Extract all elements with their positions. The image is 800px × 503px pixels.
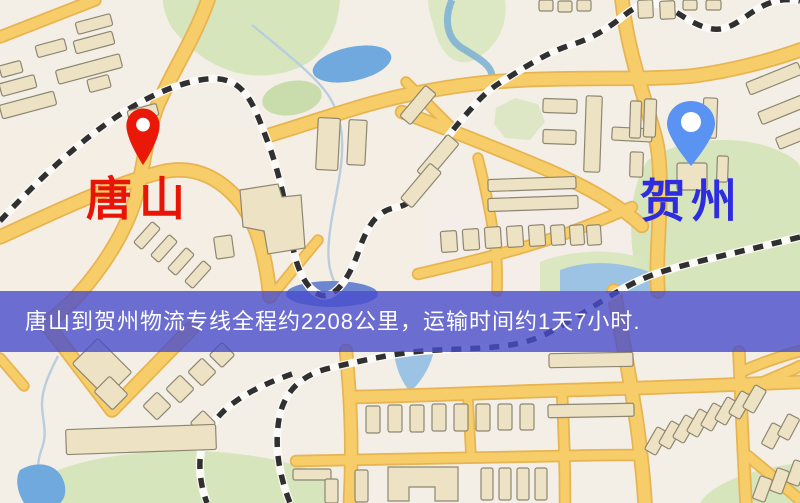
origin-pin-icon bbox=[124, 105, 162, 168]
map-image: 唐山 贺州 唐山到贺州物流专线全程约2208公里，运输时间约1天7小时. bbox=[0, 0, 800, 503]
origin-city-label: 唐山 bbox=[86, 176, 192, 222]
building bbox=[543, 98, 577, 113]
building bbox=[706, 0, 721, 10]
building bbox=[66, 424, 217, 454]
building bbox=[325, 479, 338, 503]
building bbox=[558, 1, 572, 12]
building bbox=[543, 129, 576, 144]
building bbox=[528, 224, 545, 246]
building bbox=[586, 225, 601, 246]
building bbox=[550, 225, 565, 246]
building bbox=[481, 468, 493, 500]
destination-pin-icon bbox=[664, 98, 718, 168]
building bbox=[517, 468, 529, 500]
building bbox=[569, 225, 584, 246]
building bbox=[577, 0, 591, 11]
street-map bbox=[0, 0, 800, 503]
building bbox=[347, 120, 367, 166]
destination-city-label: 贺州 bbox=[640, 178, 742, 224]
building bbox=[454, 404, 468, 431]
building bbox=[683, 0, 697, 10]
road bbox=[346, 351, 351, 503]
building bbox=[539, 0, 553, 11]
building bbox=[432, 404, 446, 431]
route-info-text: 唐山到贺州物流专线全程约2208公里，运输时间约1天7小时. bbox=[0, 291, 800, 352]
building bbox=[488, 176, 576, 191]
building bbox=[548, 403, 634, 417]
building bbox=[388, 405, 402, 432]
building bbox=[293, 469, 331, 480]
building bbox=[462, 228, 479, 250]
building bbox=[484, 226, 501, 248]
building bbox=[660, 1, 676, 20]
building bbox=[549, 352, 633, 367]
building bbox=[316, 117, 341, 170]
building bbox=[410, 405, 424, 432]
building bbox=[440, 230, 457, 252]
building bbox=[366, 406, 380, 433]
building bbox=[499, 468, 511, 500]
route-info-banner: 唐山到贺州物流专线全程约2208公里，运输时间约1天7小时. bbox=[0, 291, 800, 352]
building bbox=[476, 404, 490, 431]
building bbox=[506, 225, 523, 247]
building bbox=[638, 0, 654, 18]
building bbox=[520, 404, 534, 430]
building bbox=[498, 404, 512, 430]
building bbox=[535, 468, 547, 500]
building bbox=[584, 96, 603, 173]
building bbox=[629, 101, 641, 138]
building bbox=[643, 99, 656, 137]
building bbox=[355, 470, 368, 502]
building bbox=[214, 235, 235, 259]
building bbox=[488, 195, 578, 211]
building bbox=[630, 152, 644, 177]
